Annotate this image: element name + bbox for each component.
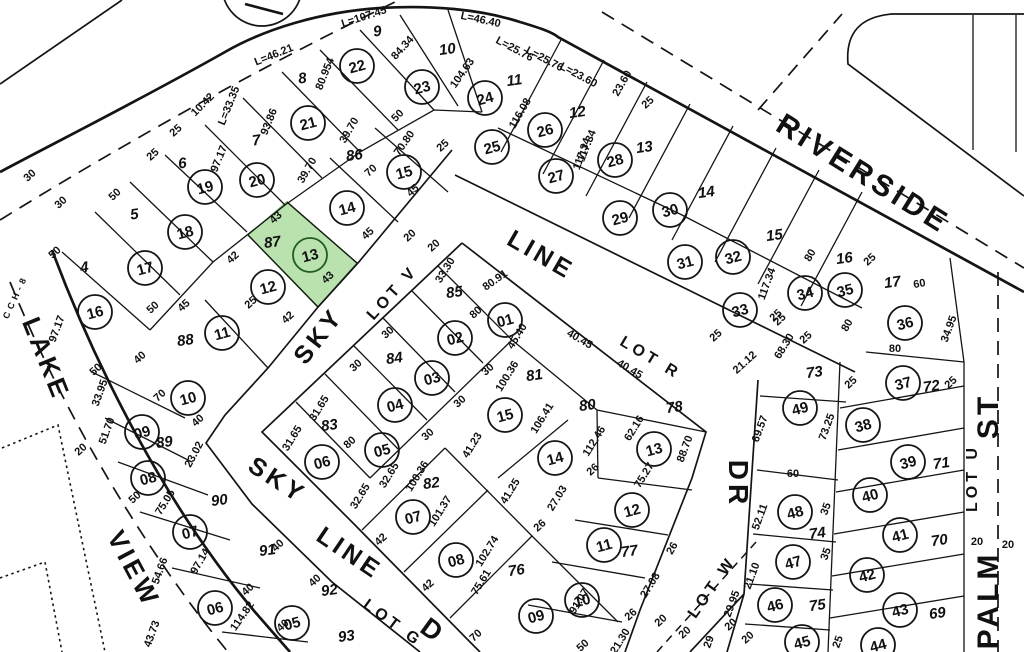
dimension-label: 106.41	[528, 401, 556, 436]
lot-number: 21	[298, 114, 319, 135]
lot-number: 31	[675, 253, 696, 274]
lot-circle-12: 12	[615, 493, 649, 527]
dimension-label: 42	[419, 577, 436, 594]
lot-circle-29: 29	[603, 201, 637, 235]
dimension-label: 101.37	[426, 494, 454, 529]
dimension-label: 25	[842, 374, 859, 391]
dimension-label: 29	[701, 634, 716, 650]
dimension-label: 21.12	[731, 349, 759, 376]
dimension-label: 20	[72, 441, 89, 458]
lot-number: 30	[660, 201, 681, 222]
dimension-label: 23.60	[610, 69, 634, 99]
dimension-label: 40	[131, 349, 148, 366]
block-number: 84	[385, 349, 405, 368]
dimension-label: 97.17	[208, 144, 229, 174]
lot-circle-12: 12	[251, 270, 285, 304]
block-number: 4	[78, 258, 90, 276]
lot-number: 41	[890, 526, 911, 547]
block-number: 86	[345, 146, 365, 165]
dimension-label: 30	[479, 361, 496, 378]
lot-number: 26	[535, 121, 556, 142]
lot-number: 04	[385, 395, 406, 416]
dimension-label: 30	[21, 167, 38, 184]
lot-circle-14: 14	[538, 441, 572, 475]
lot-number: 19	[195, 178, 216, 199]
lot-number: 22	[347, 57, 368, 78]
dimension-label: 34.95	[939, 314, 960, 344]
street-label-lake: LAKE	[16, 313, 76, 405]
dimension-label: 30	[419, 426, 436, 443]
lot-circle-20: 20	[240, 163, 274, 197]
block-number: 13	[635, 138, 655, 157]
block-number: 10	[438, 40, 458, 59]
lot-number: 20	[247, 171, 268, 192]
lot-number: 49	[790, 399, 811, 420]
lot-circle-44: 44	[861, 628, 895, 652]
lot-circle-22: 22	[340, 49, 374, 83]
dimension-label: L=46.21	[253, 42, 295, 68]
dimension-label: 80.91	[481, 268, 510, 294]
lot-number: 45	[792, 633, 813, 652]
lot-circle-43: 43	[883, 593, 917, 627]
dimension-label: 25	[144, 146, 161, 163]
dimension-label: 20	[401, 227, 418, 244]
lot-circle-49: 49	[783, 391, 817, 425]
lot-circle-39: 39	[891, 445, 925, 479]
block-number: 77	[620, 542, 640, 561]
lot-circle-04: 04	[378, 388, 412, 422]
dimension-label: 60	[912, 277, 926, 291]
dimension-label: 20	[739, 629, 756, 646]
lot-circle-11: 11	[205, 316, 239, 350]
lot-number: 02	[445, 329, 466, 350]
dimension-label: 41.25	[498, 477, 523, 507]
dimension-label: 80	[467, 304, 484, 321]
block-number: 93	[337, 627, 357, 646]
dimension-label: 116.08	[507, 96, 534, 131]
lot-circle-07: 07	[396, 500, 430, 534]
dimension-label: 75.61	[469, 568, 494, 598]
lot-circle-47: 47	[776, 545, 810, 579]
dimension-label: 30	[379, 324, 396, 341]
block-number: 70	[930, 531, 950, 550]
dimension-label: 20	[971, 536, 983, 548]
block-number: 80	[578, 396, 598, 415]
dimension-label: 27.03	[545, 484, 570, 514]
lot-number: 01	[495, 311, 516, 332]
block-number: 82	[422, 474, 442, 493]
lot-circle-06: 06	[198, 591, 232, 625]
dimension-label: 25	[242, 294, 259, 311]
lot-number: 15	[394, 163, 415, 184]
lot-circle-15: 15	[488, 398, 522, 432]
lot-circle-34: 34	[788, 276, 822, 310]
dimension-label: 60	[787, 468, 799, 480]
street-label-cch-8: CCH-8	[1, 273, 30, 320]
plat-map-svg: RIVERSIDELAKEVIEWSKYLINESKYLINEDDRPALMST…	[0, 0, 1024, 652]
lot-circle-35: 35	[828, 273, 862, 307]
dimension-label: 39.70	[295, 156, 319, 186]
lot-circle-05: 05	[365, 433, 399, 467]
dimension-label: 20	[1002, 539, 1014, 551]
street-label-line: LINE	[311, 521, 387, 585]
block-number: 6	[177, 154, 188, 172]
dimension-label: L=33.35	[216, 85, 242, 127]
lot-circle-40: 40	[853, 478, 887, 512]
lot-number: 23	[412, 78, 433, 99]
dimension-label: 20	[652, 612, 669, 629]
lot-number: 36	[895, 314, 916, 335]
block-number: 75	[808, 596, 828, 615]
lot-circle-45: 45	[785, 625, 819, 652]
lot-number: 08	[138, 469, 159, 490]
street-label-sky: SKY	[288, 302, 349, 369]
block-number: 74	[808, 524, 828, 543]
lot-circle-26: 26	[528, 113, 562, 147]
dimension-label: 50	[126, 489, 143, 506]
lot-circle-48: 48	[778, 495, 812, 529]
dimension-label: L=46.40	[459, 10, 501, 30]
dimension-label: 45	[359, 225, 376, 242]
lot-number: 11	[594, 536, 614, 557]
dimension-label: 70.80	[392, 129, 418, 158]
block-number: 83	[320, 416, 340, 435]
dimension-label: 30	[347, 357, 364, 374]
block-number: 81	[525, 366, 544, 385]
lot-number: 09	[526, 607, 547, 628]
lot-number: 06	[205, 599, 226, 620]
block-number: 85	[445, 283, 465, 302]
dimension-label: 50	[144, 299, 161, 316]
dimension-label: 70	[362, 162, 379, 179]
lot-number: 43	[890, 601, 911, 622]
dimension-label: 88.70	[675, 434, 696, 464]
dimension-label: 80.954	[313, 55, 337, 92]
street-label-palm: PALM	[972, 551, 1005, 650]
street-label-lot-u: LOT U	[964, 444, 981, 512]
lot-number: 18	[175, 223, 196, 244]
dimension-labels: 30305050252510.42L=33.35L=46.2197.1793.8…	[21, 4, 1014, 652]
lot-number: 28	[605, 151, 626, 172]
lot-circle-32: 32	[716, 240, 750, 274]
dimension-label: 42	[279, 309, 296, 326]
dimension-label: 80	[889, 343, 901, 355]
lot-circle-46: 46	[758, 588, 792, 622]
lot-circle-17: 17	[128, 251, 162, 285]
block-number: 8	[297, 69, 308, 87]
block-number: 88	[176, 331, 196, 350]
lot-circle-03: 03	[415, 361, 449, 395]
block-number: 11	[505, 71, 523, 90]
lot-number: 47	[783, 553, 804, 574]
lot-number: 37	[893, 374, 914, 395]
dimension-label: 29.95	[722, 589, 743, 619]
dimension-label: 117.34	[756, 266, 779, 302]
block-number: 78	[665, 398, 685, 417]
street-label-lot-g: LOT G	[360, 596, 426, 650]
lot-number: 40	[860, 486, 881, 507]
lot-circle-42: 42	[850, 558, 884, 592]
street-label-lot-r: LOT R	[617, 333, 684, 383]
dimension-label: 42	[224, 249, 241, 266]
dimension-label: 50	[87, 361, 104, 378]
block-number: 87	[263, 233, 283, 252]
dimension-label: 70	[151, 387, 168, 404]
dimension-label: 50	[106, 186, 123, 203]
dimension-label: 25	[639, 94, 656, 111]
lot-circle-28: 28	[598, 143, 632, 177]
dimension-label: 23.02	[183, 440, 207, 470]
lot-number: 24	[475, 88, 496, 109]
dimension-label: 39.70	[337, 116, 361, 146]
dimension-label: 26	[584, 461, 601, 478]
block-number: 90	[210, 491, 230, 510]
dimension-label: 32.65	[348, 482, 373, 512]
dimension-label: 80	[839, 317, 856, 334]
dimension-label: 35	[818, 501, 833, 517]
block-number: 9	[372, 22, 383, 40]
lot-number: 13	[644, 440, 665, 461]
plat-map-canvas: RIVERSIDELAKEVIEWSKYLINESKYLINEDDRPALMST…	[0, 0, 1024, 652]
dimension-label: 50	[389, 107, 406, 124]
lot-number: 17	[135, 259, 156, 280]
dimension-label: 51.70	[97, 416, 118, 446]
dimension-label: 33.95	[90, 378, 111, 408]
lot-circle-01: 01	[488, 303, 522, 337]
lot-number: 15	[495, 406, 516, 427]
dimension-label: 25	[830, 634, 845, 650]
lot-circle-14: 14	[330, 191, 364, 225]
block-number: 76	[507, 561, 527, 580]
lot-number: 32	[723, 248, 744, 269]
block-number: 72	[922, 377, 942, 396]
street-label-dr: DR	[723, 460, 754, 508]
street-label-st: ST	[972, 393, 1005, 439]
lot-number: 07	[180, 523, 201, 544]
lot-circle-16: 16	[78, 295, 112, 329]
lot-circle-02: 02	[438, 321, 472, 355]
dimension-label: 40.45	[565, 327, 595, 351]
lot-circle-21: 21	[291, 106, 325, 140]
dimension-label: 25	[861, 251, 878, 268]
dimension-label: 31.65	[280, 424, 305, 454]
lot-number: 35	[835, 281, 856, 302]
dimension-label: 75.27	[632, 461, 657, 491]
block-number: 15	[765, 226, 785, 245]
lot-circle-10: 10	[171, 381, 205, 415]
dimension-label: 62.16	[622, 414, 647, 444]
dimension-label: 73.25	[817, 412, 838, 442]
lot-circle-37: 37	[886, 366, 920, 400]
lot-number: 48	[785, 503, 806, 524]
lot-number: 44	[868, 635, 889, 652]
dimension-label: 27.08	[638, 571, 663, 601]
lot-circle-13: 13	[637, 432, 671, 466]
lot-number: 39	[898, 453, 919, 474]
lot-circle-27: 27	[539, 159, 573, 193]
dimension-label: 45	[404, 182, 421, 199]
block-number: 91	[258, 541, 277, 560]
dimension-label: 43.73	[142, 619, 163, 649]
street-label-sky: SKY	[243, 451, 311, 509]
block-number: 12	[568, 103, 588, 122]
street-label-riverside: RIVERSIDE	[770, 108, 955, 241]
lot-number: 05	[282, 614, 303, 635]
dimension-label: 80	[341, 434, 358, 451]
street-label-line: LINE	[502, 225, 579, 286]
lot-circle-08: 08	[439, 543, 473, 577]
lot-circle-11: 11	[587, 528, 621, 562]
lot-number: 14	[337, 198, 358, 219]
dimension-label: 68.30	[772, 332, 797, 362]
lot-number: 46	[765, 596, 786, 617]
lot-number: 29	[610, 209, 631, 230]
lot-number: 07	[403, 508, 424, 529]
lot-circle-06: 06	[305, 445, 339, 479]
lot-circle-30: 30	[653, 193, 687, 227]
dimension-label: 10.42	[189, 91, 217, 119]
lot-number: 34	[795, 283, 816, 304]
block-number: 16	[835, 249, 855, 268]
dimension-label: 25	[707, 327, 724, 344]
lot-number: 03	[422, 369, 443, 390]
dimension-label: 25	[434, 137, 451, 154]
lot-circle-31: 31	[668, 245, 702, 279]
lot-number: 12	[258, 278, 279, 299]
dimension-label: 21.10	[742, 561, 763, 591]
dimension-label: 102.74	[473, 533, 501, 569]
block-number: 71	[932, 454, 951, 473]
lot-number: 10	[178, 389, 199, 410]
dimension-label: 84.34	[389, 33, 417, 62]
block-number: 5	[129, 205, 140, 223]
lot-circle-36: 36	[888, 306, 922, 340]
dimension-label: 20	[425, 237, 442, 254]
lot-circle-18: 18	[168, 215, 202, 249]
dimension-label: 100.36	[493, 359, 521, 394]
lot-number: 08	[446, 551, 467, 572]
lot-number: 27	[546, 167, 567, 188]
lot-number: 38	[853, 416, 874, 437]
lot-circle-07: 07	[173, 515, 207, 549]
block-number: 73	[805, 363, 825, 382]
lot-number: 14	[545, 448, 566, 469]
lot-circle-23: 23	[405, 70, 439, 104]
street-label-lot-v: LOT V	[364, 262, 422, 323]
dimension-label: L=23.60	[558, 61, 600, 91]
lot-number: 12	[622, 501, 643, 522]
lot-number: 06	[312, 453, 333, 474]
dimension-label: 50	[46, 244, 63, 261]
lot-circle-15: 15	[387, 155, 421, 189]
lot-circle-09: 09	[519, 599, 553, 633]
block-number: 92	[320, 581, 340, 600]
block-number: 69	[928, 604, 948, 623]
dimension-label: 30	[52, 194, 69, 211]
dimension-label: 25	[797, 329, 814, 346]
dimension-label: 41.23	[460, 431, 485, 461]
block-number: 14	[697, 183, 717, 202]
dimension-label: 69.57	[750, 414, 771, 444]
lot-circle-24: 24	[468, 81, 502, 115]
dimension-label: 25	[167, 122, 184, 139]
dimension-label: 97.17	[47, 314, 68, 344]
dimension-label: 112.46	[581, 424, 609, 458]
dimension-label: 33.30	[433, 256, 458, 286]
lot-number: 16	[85, 303, 106, 324]
dimension-label: 26	[531, 517, 548, 534]
lot-number: 25	[482, 138, 503, 159]
lot-circle-19: 19	[188, 170, 222, 204]
dimension-label: 80	[802, 247, 819, 264]
dimension-label: 50	[574, 637, 591, 652]
lot-circle-38: 38	[846, 408, 880, 442]
block-number: 17	[883, 273, 903, 292]
